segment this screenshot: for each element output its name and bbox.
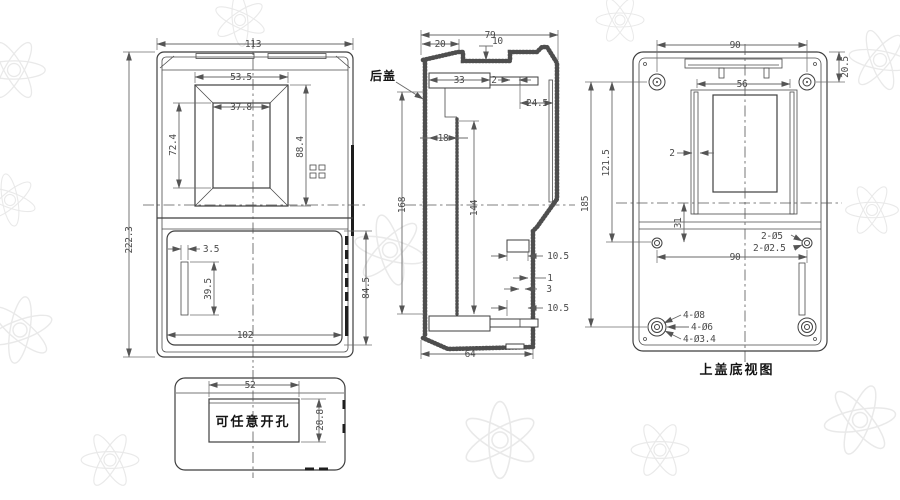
label-holes-a: 2-Ø5 [761,231,783,242]
front-view: 113 222.3 53.5 37.8 72.4 88.4 3.5 39.5 1… [123,38,372,368]
top-slot-right [268,54,326,59]
seal-slot [181,262,188,315]
dim-window-w: 56 [737,79,748,90]
dim-lip-b: 3 [546,284,551,295]
dim-top-left: 20 [435,39,446,50]
dim-top-offset: 20.5 [840,56,851,78]
dim-window-inner-w: 37.8 [230,102,252,113]
dim-cavity-h: 168 [397,196,408,213]
cover-view: 90 20.5 56 2 31 90 2-Ø5 2-Ø2.5 4-Ø8 4-Ø6… [580,40,851,378]
dim-opening-h: 28.8 [315,409,326,431]
dim-step-bottom: 10.5 [547,303,569,314]
dim-lip-a: 1 [547,273,553,284]
dim-window-outer-h: 88.4 [295,136,306,158]
dim-gap: 2 [491,75,496,86]
dim-notch-depth: 10 [492,36,503,47]
indicator-squares-icon [310,165,325,178]
dim-window-outer-w: 53.5 [230,72,252,83]
front-outer-shell [157,52,353,357]
dim-step-top: 10.5 [547,251,569,262]
dim-slot-w: 3.5 [203,244,219,255]
rear-cover-label: 后盖 [370,68,396,83]
knockout-view: 可任意开孔 52 28.8 [175,370,346,478]
section-view: 后盖 79 20 10 33 2 24.5 18 168 [370,30,575,360]
dim-rib-t: 2 [669,148,674,159]
dim-lower-w: 102 [237,330,253,341]
label-boss-c: 4-Ø3.4 [683,334,716,345]
dim-hole-span: 90 [730,252,741,263]
dim-front-height: 222.3 [124,226,135,253]
dim-wall-offset: 18 [438,133,449,144]
dim-inner-h: 144 [469,199,480,216]
vent-slots [345,236,349,336]
knockout-note: 可任意开孔 [215,414,290,430]
dim-tongue-w: 33 [454,75,465,86]
dim-front-width: 113 [245,39,261,50]
mid-holes [652,238,812,248]
dim-window-inner-h: 72.4 [168,134,179,156]
dim-lower-h: 84.5 [361,277,372,299]
dim-slot-h: 39.5 [203,278,214,300]
technical-drawing-canvas: 113 222.3 53.5 37.8 72.4 88.4 3.5 39.5 1… [0,0,900,500]
dim-center-offset: 31 [673,217,684,228]
cover-top-slot [685,59,782,68]
dim-boss-span-top: 90 [730,40,741,51]
cover-view-caption: 上盖底视图 [699,362,774,378]
dim-opening-w: 52 [245,380,256,391]
dim-boss-v-mid: 121.5 [601,149,612,176]
terminal-cover-panel [167,231,342,345]
cover-side-slot [799,263,805,315]
cover-outer [633,52,827,351]
dim-boss-v-full: 185 [580,196,591,212]
label-boss-a: 4-Ø8 [683,310,705,321]
top-slot-left [196,54,254,59]
dim-bottom-w: 64 [465,349,476,360]
display-window-inner [213,103,270,188]
dim-right-inset: 24.5 [526,98,548,109]
label-boss-b: 4-Ø6 [691,322,713,333]
label-holes-b: 2-Ø2.5 [753,243,786,254]
section-outer-wall [423,47,557,345]
